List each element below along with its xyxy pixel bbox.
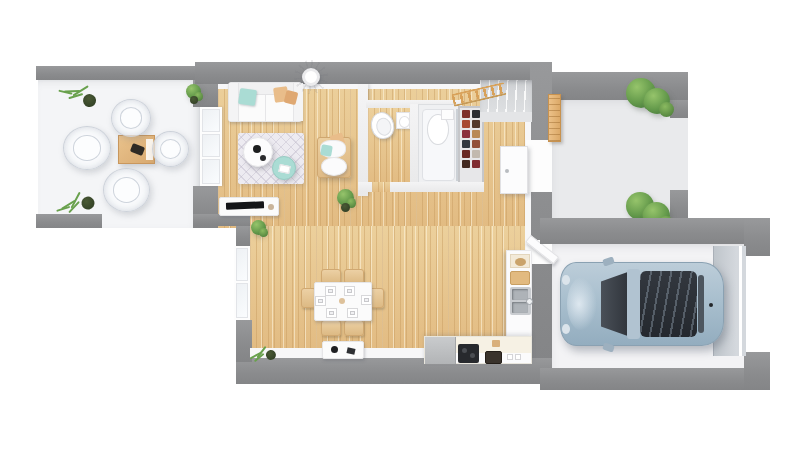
jar [507,354,513,360]
divider-wall-wc-shower [410,104,418,188]
basket [485,351,502,364]
place-setting [326,308,337,318]
cutting-board [510,271,530,285]
place-setting [347,308,358,318]
porch-bench [548,94,561,142]
place-setting [361,295,372,305]
lamp-shade [302,68,320,86]
shoe-item [472,130,480,138]
place-setting [325,286,336,296]
main-floor-lower [250,226,532,352]
shoe-item [472,140,480,148]
sofa [228,82,302,122]
teal-side-table [272,156,296,180]
paper-roll [399,116,410,128]
ghost-chair [63,126,111,170]
garage-wall-right-stub-top [744,218,770,256]
car-headlight [562,324,570,334]
car-mirror [602,256,615,266]
cooktop-burner [462,348,467,353]
window-wall-upper [200,107,222,186]
ghost-chair [152,131,189,167]
teal-pillow [320,144,333,157]
porch-bush [626,78,672,118]
dining-chair [321,320,341,336]
plant-pot [190,96,198,104]
sink-basin [512,302,528,313]
shoe-item [462,150,470,158]
cooktop [458,344,479,363]
window-wall-lower [234,246,250,320]
car-panoramic-roof [640,271,697,337]
magazine [278,164,290,174]
faucet [526,298,533,305]
wc-door-opening [372,182,390,192]
potted-plant [184,84,204,106]
car [560,262,724,346]
garage-wall-right-stub-bottom [744,352,770,390]
step-wall-vertical [236,226,250,246]
sideboard [322,341,364,359]
tan-item [492,340,500,347]
ghost-chair [103,168,150,212]
bush-foliage [644,88,670,114]
sideboard-decor [331,346,338,353]
window-pane [202,159,220,184]
shoe-item [462,110,470,118]
window-pane [202,109,220,132]
shoe-item [462,120,470,128]
car-hood-highlight [567,277,597,331]
cooktop-burner [470,353,475,358]
plant-pot [81,92,97,108]
jar [515,354,521,360]
armchair-group [317,137,351,178]
table-decor [130,143,145,156]
table-centerpiece [339,298,345,304]
garage-wall-bottom [540,368,770,390]
shoe-item [472,160,480,168]
tv-stand [219,197,279,216]
floorplan-render [0,0,800,450]
kitchen-counter-right [506,250,532,338]
sink-basin [512,289,528,300]
shoe-item [462,140,470,148]
table-decor [260,155,266,161]
pouf [321,157,347,176]
car-windshield [601,271,627,337]
coffee-table [243,137,273,167]
front-door-opening [526,140,552,192]
toilet-paper-holder [396,112,410,129]
appliance [425,337,456,364]
dining-chair [344,320,364,336]
bowl-contents [515,258,526,266]
shoe-item [472,110,480,118]
stair-landing [480,112,532,122]
window-pane [236,248,248,281]
kitchen-counter-bottom [424,336,532,364]
plant-pot [341,203,350,212]
houseplant [336,189,356,212]
sofa-seat-line [265,95,266,121]
shoe-item [472,150,480,158]
garage-wall-top [540,218,770,244]
ghost-chair [111,99,151,137]
front-door-leaf [500,146,528,194]
plant-pot [265,349,276,360]
sideboard-decor [346,347,355,355]
outdoor-dining-table [118,135,155,164]
car-antenna [709,303,713,307]
car-roof [627,269,640,339]
sink-unit [510,287,531,315]
tv [226,201,264,209]
place-setting [344,286,355,296]
door-handle [505,169,509,173]
car-rear-window [698,275,704,333]
toilet-bowl [374,116,393,137]
window-pane [202,134,220,157]
dining-table [314,282,372,321]
plant-foliage [251,220,266,235]
floor-lamp [294,60,328,94]
car-headlight [562,275,570,285]
shoe-item [472,120,480,128]
shelf-bowl [510,254,530,268]
table-decor [253,145,261,153]
houseplant [250,219,268,241]
garage-door-gap [739,246,742,356]
window-pane [236,283,248,318]
shoe-item [462,130,470,138]
tv-stand-decor [268,204,274,210]
teal-pillow [238,88,257,106]
shower-room [418,104,460,188]
shoe-item [462,160,470,168]
plant-pot [80,195,95,210]
place-setting [315,296,326,306]
cistern-box [441,109,454,120]
